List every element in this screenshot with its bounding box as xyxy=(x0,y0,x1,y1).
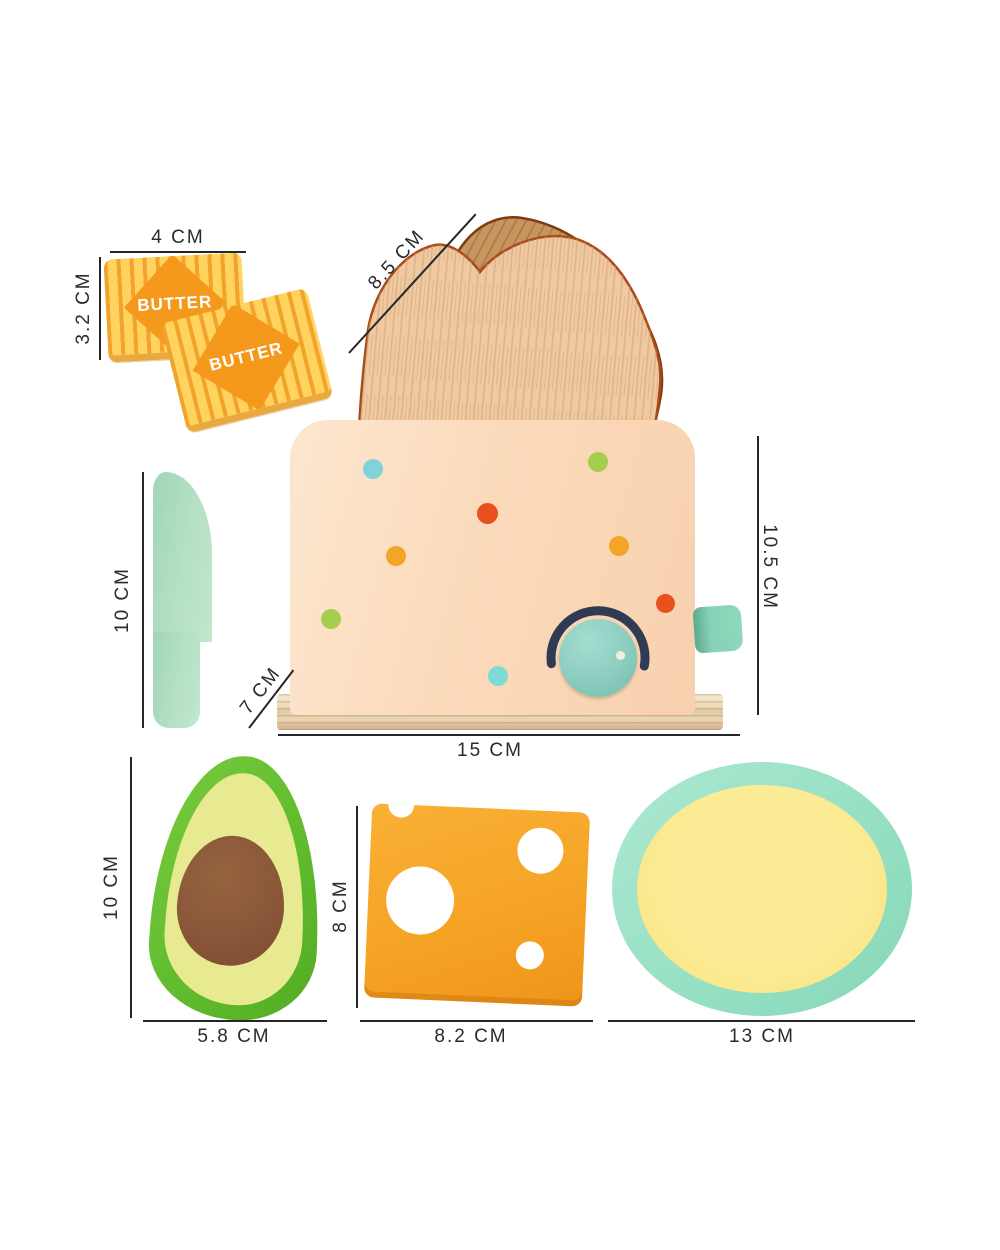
dimension-line-avocado-height xyxy=(130,757,132,1018)
plate-center xyxy=(637,785,887,993)
dimension-line-butter-width xyxy=(110,251,246,253)
butter-height-label: 3.2 CM xyxy=(74,208,94,408)
avocado-height-label: 10 CM xyxy=(102,787,122,987)
toast-illustration xyxy=(330,200,730,455)
cheese-hole-large xyxy=(385,865,456,936)
cheese-notch xyxy=(388,803,415,818)
dimension-line-avocado-width xyxy=(143,1020,327,1022)
dimension-line-cheese-width xyxy=(360,1020,593,1022)
dimension-line-toaster-width xyxy=(278,734,740,736)
dimension-line-butter-height xyxy=(99,257,101,360)
polka-dot-red xyxy=(656,594,675,613)
toaster-knob xyxy=(559,619,637,697)
cheese-hole-medium xyxy=(516,827,564,875)
plate xyxy=(612,762,912,1016)
toaster-width-label: 15 CM xyxy=(390,741,590,761)
polka-dot-orange xyxy=(609,536,629,556)
knob-highlight xyxy=(616,651,625,660)
toaster-height-label: 10.5 CM xyxy=(759,467,779,667)
cheese-slice xyxy=(364,803,590,1006)
knife-handle xyxy=(153,632,200,728)
product-dimensions-figure: BUTTER BUTTER 4 CM 3.2 CM 8.5 CM xyxy=(0,0,1000,1250)
polka-dot-red xyxy=(477,503,498,524)
dimension-line-plate-diameter xyxy=(608,1020,915,1022)
polka-dot-teal xyxy=(488,666,508,686)
knife-blade xyxy=(153,472,212,642)
polka-dot-orange xyxy=(386,546,406,566)
polka-dot-blue xyxy=(363,459,383,479)
dimension-line-knife-length xyxy=(142,472,144,728)
knife-length-label: 10 CM xyxy=(113,500,133,700)
polka-dot-green xyxy=(588,452,608,472)
cheese-hole-small xyxy=(515,941,544,970)
cheese-width-label: 8.2 CM xyxy=(371,1027,571,1047)
toaster-lever xyxy=(692,604,743,653)
dimension-line-cheese-height xyxy=(356,806,358,1008)
avocado-half xyxy=(145,752,327,1024)
plate-diameter-label: 13 CM xyxy=(662,1027,862,1047)
butter-width-label: 4 CM xyxy=(78,228,278,248)
avocado-width-label: 5.8 CM xyxy=(134,1027,334,1047)
cheese-height-label: 8 CM xyxy=(331,806,351,1006)
